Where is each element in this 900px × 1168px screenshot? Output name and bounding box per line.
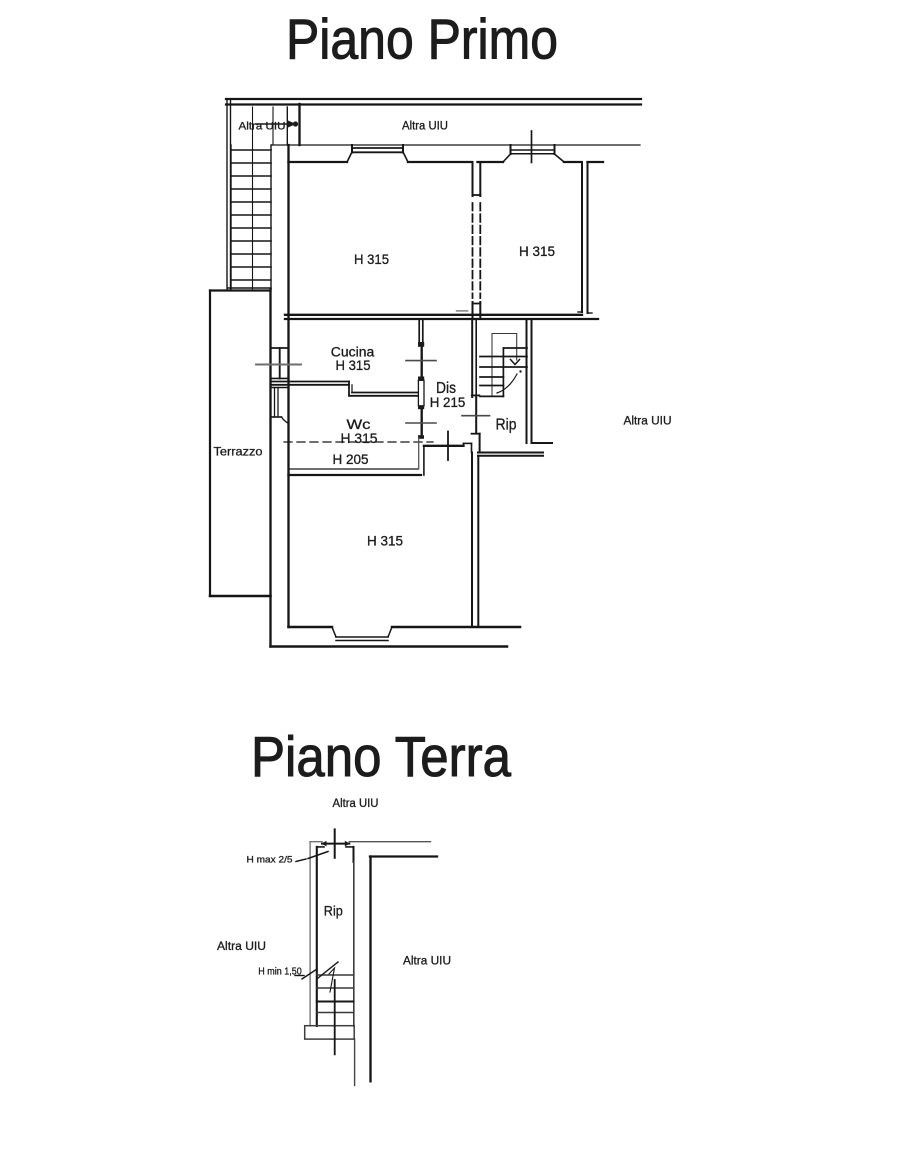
svg-text:Altra UIU: Altra UIU [333,798,379,810]
svg-text:H min 1,50: H min 1,50 [258,966,302,978]
svg-text:Rip: Rip [324,903,343,919]
svg-text:Piano Terra: Piano Terra [251,725,511,789]
svg-text:Altra UIU: Altra UIU [624,416,672,428]
svg-text:Altra UIU: Altra UIU [403,956,451,968]
svg-text:H 205: H 205 [333,452,369,467]
svg-text:Piano Primo: Piano Primo [286,8,558,72]
svg-text:H 315: H 315 [367,534,403,549]
svg-text:Altra UIU: Altra UIU [402,121,448,133]
svg-text:Wc: Wc [347,416,371,432]
svg-text:H 315: H 315 [354,252,389,267]
svg-text:Altra UIU: Altra UIU [239,120,286,132]
svg-text:H 215: H 215 [430,395,466,410]
svg-text:H 315: H 315 [336,358,371,373]
svg-text:H 315: H 315 [341,431,378,446]
svg-text:Terrazzo: Terrazzo [214,445,263,459]
svg-text:Rip: Rip [496,417,517,434]
svg-text:H max 2/5: H max 2/5 [247,855,293,865]
svg-text:H 315: H 315 [519,244,555,259]
svg-text:Altra UIU: Altra UIU [217,941,266,953]
